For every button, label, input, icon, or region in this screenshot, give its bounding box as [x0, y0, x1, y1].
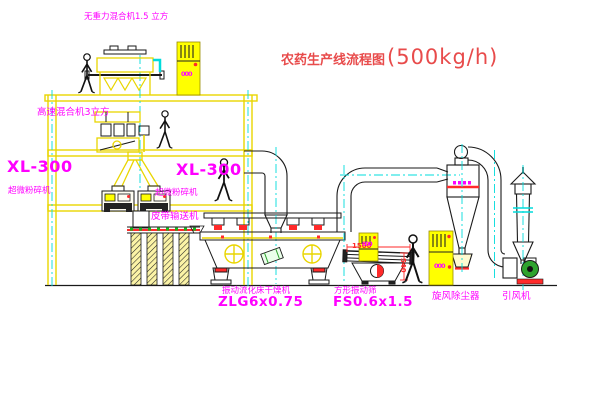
cabinet-mid-mark: 000	[362, 242, 372, 248]
dryer-feed-duct	[244, 151, 287, 233]
belt-conveyor-label: 皮带输送机	[151, 212, 199, 222]
sieve-model-label: FS0.6x1.5	[333, 296, 413, 310]
fluid-bed-dryer-drawing	[200, 213, 345, 284]
diagram-title: 农药生产线流程图 (500kg/h)	[281, 45, 498, 69]
cabinet-right-mark: 000	[434, 263, 445, 270]
mill-discharge-duct	[133, 211, 149, 228]
title-capacity: (500kg/h)	[387, 45, 498, 69]
gravity-mixer-label: 无重力混合机1.5 立方	[84, 13, 168, 22]
fan-suction-pipe	[468, 147, 517, 278]
flow-diagram-page: 农药生产线流程图 (500kg/h) 无重力混合机1.5 立方 高速混合机3立方…	[0, 0, 600, 403]
person-figure-floor2	[157, 111, 173, 148]
control-cabinet-roof	[177, 42, 200, 95]
dryer-model-label: ZLG6x0.75	[218, 296, 303, 310]
title-text: 农药生产线流程图	[281, 49, 385, 68]
mill-mid-name-label: 超微粉碎机	[155, 189, 198, 198]
mill-mid-model-label: XL-300	[176, 162, 242, 178]
exhaust-duct	[337, 168, 448, 232]
belt-conveyor-drawing	[127, 226, 204, 285]
person-figure-roof	[78, 54, 94, 93]
cyclone-label: 旋风除尘器	[432, 292, 480, 302]
control-cabinet-right	[429, 231, 453, 285]
mill-left-model-label: XL-300	[7, 159, 73, 175]
high-speed-mixer-drawing	[95, 112, 158, 186]
exhaust-stack-drawing	[511, 167, 535, 264]
fan-label: 引风机	[502, 292, 531, 302]
cabinet-roof-mark: 000	[181, 71, 192, 78]
sieve-height-dimension: 540	[399, 258, 406, 273]
mill-left-name-label: 超微粉碎机	[8, 187, 51, 196]
gravity-mixer-drawing	[85, 46, 164, 95]
mill-left-drawing	[102, 186, 134, 212]
high-speed-mixer-label: 高速混合机3立方	[37, 108, 110, 118]
